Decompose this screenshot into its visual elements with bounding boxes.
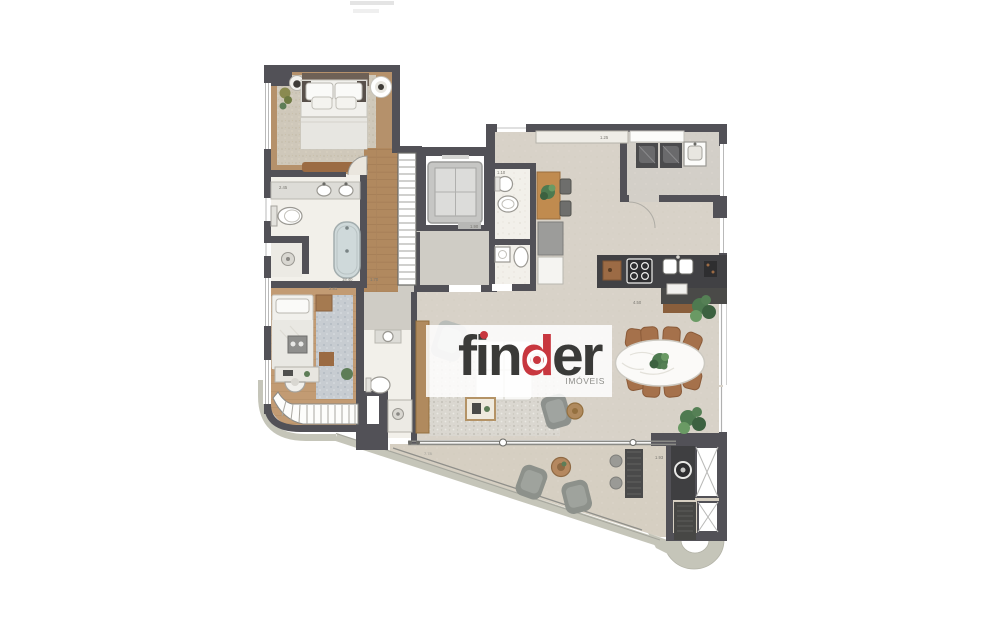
svg-text:1.10: 1.10 <box>497 170 506 175</box>
svg-text:2.45: 2.45 <box>279 185 288 190</box>
svg-text:1.93: 1.93 <box>655 455 664 460</box>
svg-text:1.90: 1.90 <box>470 224 479 229</box>
svg-text:1.25: 1.25 <box>600 135 609 140</box>
svg-text:18.40: 18.40 <box>342 277 353 282</box>
svg-text:fin: fin <box>458 324 520 388</box>
svg-text:4.50: 4.50 <box>633 300 642 305</box>
svg-text:7.78: 7.78 <box>424 451 433 456</box>
svg-text:IMÓVEIS: IMÓVEIS <box>565 376 605 386</box>
svg-text:1.70: 1.70 <box>370 277 379 282</box>
svg-text:2.81: 2.81 <box>329 286 338 291</box>
svg-text:d: d <box>520 324 552 388</box>
